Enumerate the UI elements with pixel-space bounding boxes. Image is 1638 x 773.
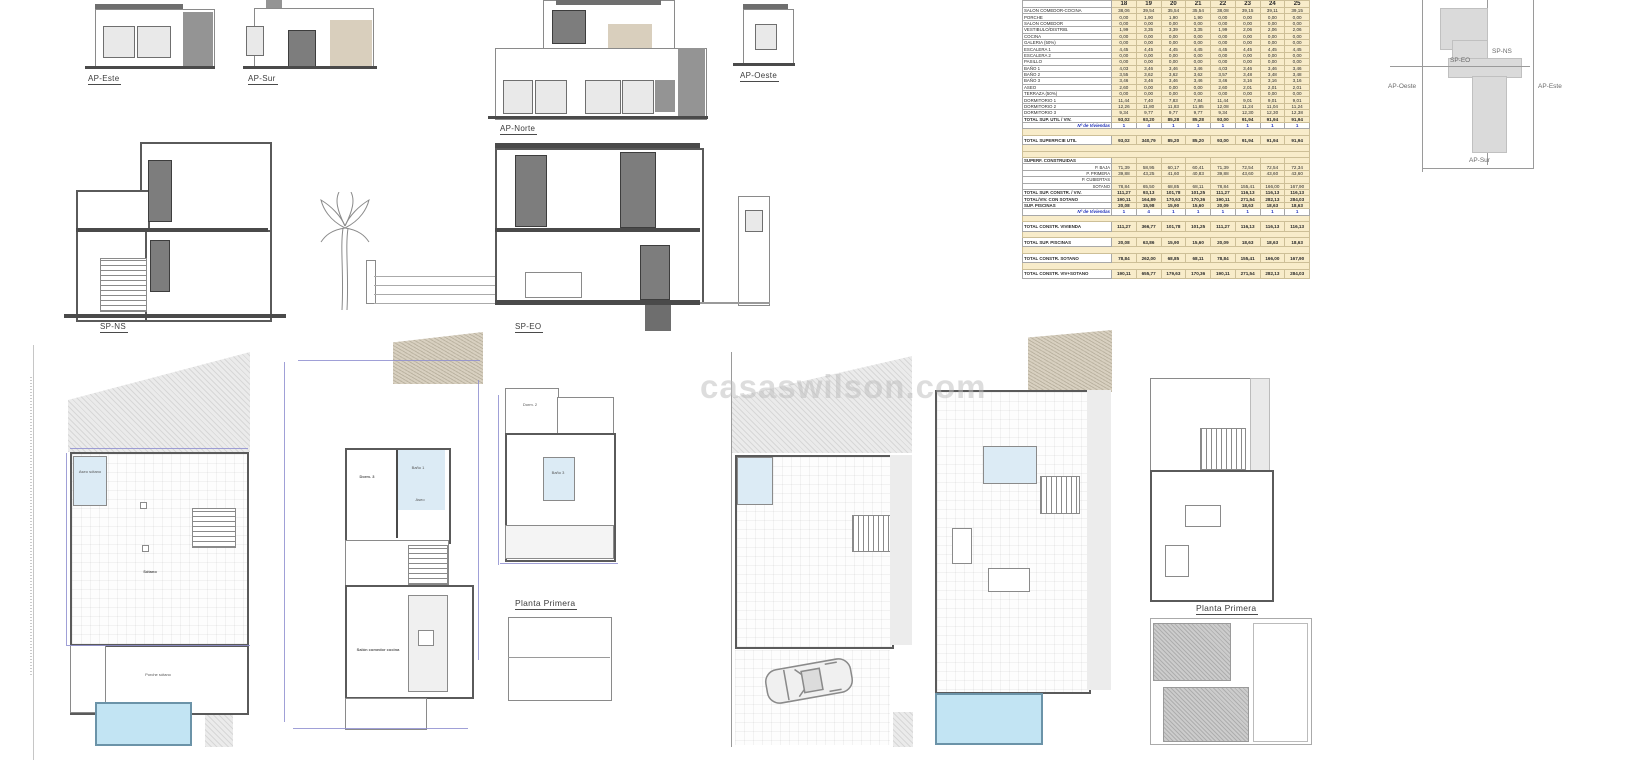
table-col-header: 23: [1235, 1, 1260, 8]
terrain-hatch: [68, 352, 250, 452]
table-cell: 93,02: [1112, 135, 1137, 145]
kitchen-counter: [418, 630, 434, 646]
door: [640, 245, 670, 300]
elevation-label: AP-Oeste: [740, 71, 779, 82]
table-cell: 68,85: [1161, 253, 1186, 263]
section-label: SP-EO: [515, 322, 543, 333]
window: [246, 26, 264, 56]
floor-plan-baja-b: [728, 330, 914, 750]
table-cell: 271,54: [1235, 269, 1260, 279]
table-cell: 116,13: [1285, 222, 1310, 232]
table-cell: 166,00: [1260, 253, 1285, 263]
table-col-header: 25: [1285, 1, 1310, 8]
ground-line: [700, 302, 770, 304]
table-cell: 63,86: [1136, 237, 1161, 247]
table-row: TOTAL/VIV. CON SOTANO190,11164,89170,631…: [1023, 196, 1310, 202]
dimension-line: [478, 380, 479, 660]
table-row: TOTAL CONSTR. VIV+SOTANO190,11655,77179,…: [1023, 269, 1310, 279]
floor-plan-primera-a: Dorm. 2 Baño 3 Planta Primera: [495, 385, 650, 715]
table-cell: 91,94: [1285, 135, 1310, 145]
table-col-header: 20: [1161, 1, 1186, 8]
terrain-patch: [1028, 330, 1112, 392]
areas-table: 1819202122232425SALON COMEDOR-COCINA38,0…: [1022, 0, 1310, 279]
section-sp-eo: SP-EO: [310, 140, 775, 340]
elevation-label: AP-Norte: [500, 124, 537, 135]
boundary-line: [1422, 168, 1534, 169]
dimension-line: [66, 645, 250, 646]
table-row-label: TOTAL CONSTR. SOTANO: [1023, 253, 1112, 263]
terrace-outline: [345, 698, 427, 730]
stairs: [100, 258, 147, 312]
pool: [95, 702, 192, 746]
plan-label: Planta Primera: [1196, 603, 1258, 615]
building-strip: [1472, 76, 1507, 153]
key-label-ap-sur: AP-Sur: [1469, 157, 1490, 164]
roof-band: [556, 0, 661, 5]
window: [150, 240, 170, 292]
window: [620, 152, 656, 228]
drawing-sheet: AP-Este AP-Sur AP-Norte AP-Oeste: [0, 0, 1638, 773]
table-cell: 78,84: [1112, 253, 1137, 263]
key-label-ap-este: AP-Este: [1538, 83, 1562, 90]
floor-plan-sotano: Aseo sótano Sótano Porche sótano: [30, 345, 255, 773]
ground-line: [85, 66, 215, 69]
main-block: [1150, 470, 1274, 602]
boundary-line: [1422, 0, 1423, 172]
side-strip: [1250, 378, 1270, 472]
stairs-hatch: [205, 715, 233, 747]
elevation-side-block: [183, 12, 213, 66]
table-cell: 20,08: [1112, 237, 1137, 247]
table-cell: 179,63: [1161, 269, 1186, 279]
terrace-steps: [374, 268, 495, 304]
table-cell: 15,90: [1161, 237, 1186, 247]
table-row-label: TOTAL CONSTR. VIV+SOTANO: [1023, 269, 1112, 279]
table-col-header: 19: [1136, 1, 1161, 8]
pool: [935, 693, 1043, 745]
palm-tree-drawing: [318, 192, 370, 310]
bedroom-block: [505, 388, 559, 435]
elevation-ap-sur: AP-Sur: [243, 0, 377, 90]
stairs: [1040, 476, 1080, 514]
key-label-sp-eo: SP-EO: [1450, 57, 1470, 64]
stairs: [1200, 428, 1246, 470]
dimension-line: [70, 448, 248, 449]
table-col-header: 18: [1112, 1, 1137, 8]
table-cell: 15,60: [1186, 237, 1211, 247]
table-cell: 18,63: [1235, 237, 1260, 247]
table-row-label: TOTAL SUPERFICIE UTIL: [1023, 135, 1112, 145]
table-cell: 93,00: [1211, 135, 1236, 145]
stairs: [408, 545, 448, 585]
ground-line: [733, 63, 795, 66]
column: [140, 502, 147, 509]
table-cell: 111,27: [1112, 222, 1137, 232]
room-label: Aseo: [405, 498, 435, 503]
table-cell: 190,11: [1211, 269, 1236, 279]
table-cell: 170,36: [1186, 269, 1211, 279]
table-cell: 116,13: [1235, 222, 1260, 232]
table-corner-cell: [1023, 1, 1112, 8]
table-col-header: 24: [1260, 1, 1285, 8]
bathroom: [983, 446, 1037, 484]
table-row: TOTAL SUP. PISCINAS20,0863,8615,9015,602…: [1023, 237, 1310, 247]
plot-boundary: [731, 352, 732, 747]
room-label: Dorm. 3: [352, 475, 382, 480]
room-label: Baño 1: [403, 466, 433, 471]
table-cell: 18,63: [1285, 237, 1310, 247]
window: [585, 80, 621, 114]
table-cell: 111,27: [1211, 222, 1236, 232]
elevation-ap-norte: AP-Norte: [485, 0, 715, 140]
key-label-ap-oeste: AP-Oeste: [1388, 83, 1416, 90]
floor-plan-baja-a: Dorm. 3 Baño 1 Aseo Salón comedor cocina: [278, 330, 485, 735]
roof-ridge-line: [508, 657, 610, 658]
sheet-margin-line: [33, 345, 34, 760]
floor-slab: [76, 228, 268, 232]
window: [535, 80, 567, 114]
terrace-lower: [505, 525, 614, 559]
basement-block: [645, 305, 671, 331]
table-cell: 20,09: [1211, 237, 1236, 247]
roof-outline: [508, 617, 612, 701]
floor-plan-primera-b: Planta Primera: [1145, 375, 1323, 750]
window: [503, 80, 533, 114]
roof-terrace: [1153, 623, 1231, 681]
room-label: Dorm. 2: [513, 403, 547, 408]
room-label: Salón comedor cocina: [348, 648, 408, 653]
elevation-label: AP-Sur: [248, 74, 278, 85]
window: [515, 155, 547, 227]
table-cell: 284,03: [1285, 269, 1310, 279]
elevation-ap-este: AP-Este: [85, 0, 215, 90]
key-label-sp-ns: SP-NS: [1492, 48, 1512, 55]
bathroom: [543, 457, 575, 501]
door: [288, 30, 316, 68]
side-yard: [1087, 390, 1111, 690]
ground-line: [488, 116, 708, 119]
bed-furniture: [525, 272, 582, 298]
table-cell: 190,11: [1112, 269, 1137, 279]
dimension-line: [66, 453, 67, 645]
table-row: TOTAL SUP. CONSTR. / VIV.111,2793,13101,…: [1023, 190, 1310, 196]
window: [103, 26, 135, 58]
interior-wall: [396, 450, 398, 538]
section-sp-ns: SP-NS: [60, 140, 290, 340]
table-cell: 340,79: [1136, 135, 1161, 145]
table-cell: 155,41: [1235, 253, 1260, 263]
table-cell: 655,77: [1136, 269, 1161, 279]
dimension-line: [498, 395, 499, 565]
table-cell: 91,94: [1260, 135, 1285, 145]
table-row-label: TOTAL SUP. PISCINAS: [1023, 237, 1112, 247]
stairs-hatch: [893, 712, 913, 747]
room-label: Baño 3: [543, 471, 573, 476]
key-plan: SP-NS SP-EO AP-Oeste AP-Este AP-Sur: [1350, 0, 1638, 185]
section-label: SP-NS: [100, 322, 128, 333]
table-row: TOTAL SUPERFICIE UTIL93,02340,7985,2085,…: [1023, 135, 1310, 145]
dimension-line: [500, 563, 618, 564]
table-cell: 167,90: [1285, 253, 1310, 263]
furniture: [988, 568, 1030, 592]
table-cell: 18,63: [1260, 237, 1285, 247]
window: [552, 10, 586, 44]
elevation-side-block: [678, 48, 705, 118]
room-label: Sótano: [130, 570, 170, 575]
table-cell: 85,20: [1161, 135, 1186, 145]
room-label: Porche sótano: [130, 673, 186, 678]
dimension-line: [284, 362, 285, 722]
table-header-row: 1819202122232425: [1023, 1, 1310, 8]
elevation-ap-oeste: AP-Oeste: [733, 0, 795, 90]
table-cell: 101,25: [1186, 222, 1211, 232]
wall-patch: [655, 80, 675, 112]
margin-micro-text: [30, 375, 32, 675]
elevation-label: AP-Este: [88, 74, 121, 85]
furniture: [1165, 545, 1189, 577]
boundary-line: [1533, 0, 1534, 168]
table-col-header: 22: [1211, 1, 1236, 8]
side-yard: [890, 455, 912, 645]
window: [622, 80, 654, 114]
table-cell: 91,94: [1235, 135, 1260, 145]
table-cell: 282,13: [1260, 269, 1285, 279]
table-cell: 366,77: [1136, 222, 1161, 232]
table-cell: 78,84: [1211, 253, 1236, 263]
plan-label: Planta Primera: [515, 598, 577, 610]
room-label: Aseo sótano: [70, 470, 110, 475]
furniture: [1185, 505, 1221, 527]
stairs: [192, 508, 236, 548]
dimension-line: [298, 360, 480, 361]
table-row-label: TOTAL CONSTR. VIVIENDA: [1023, 222, 1112, 232]
furniture: [952, 528, 972, 564]
bathroom: [737, 457, 773, 505]
table-cell: 68,11: [1186, 253, 1211, 263]
table-cell: 101,78: [1161, 222, 1186, 232]
table-row: TOTAL CONSTR. VIVIENDA111,27366,77101,78…: [1023, 222, 1310, 232]
ground-line: [243, 66, 377, 69]
areas-table-wrap: 1819202122232425SALON COMEDOR-COCINA38,0…: [1022, 0, 1310, 298]
floor-plan-baja-c: [928, 328, 1114, 753]
terrain-hatch: [732, 352, 912, 453]
window: [745, 210, 763, 232]
dimension-line: [293, 728, 468, 729]
window: [148, 160, 172, 222]
roof-terrace: [1163, 687, 1249, 742]
roof-strip: [1253, 623, 1308, 742]
stone-cladding: [330, 20, 372, 66]
column: [142, 545, 149, 552]
floor-slab: [495, 228, 700, 232]
window: [755, 24, 777, 50]
table-cell: 85,20: [1186, 135, 1211, 145]
table-row: TOTAL CONSTR. SOTANO78,84262,0068,8568,1…: [1023, 253, 1310, 263]
window: [137, 26, 171, 58]
bathroom: [73, 456, 107, 506]
ground-slab: [64, 314, 286, 318]
terrain-patch: [393, 332, 483, 384]
table-col-header: 21: [1186, 1, 1211, 8]
table-cell: 116,13: [1260, 222, 1285, 232]
table-cell: 262,00: [1136, 253, 1161, 263]
section-cut-line-eo: [1390, 66, 1530, 67]
